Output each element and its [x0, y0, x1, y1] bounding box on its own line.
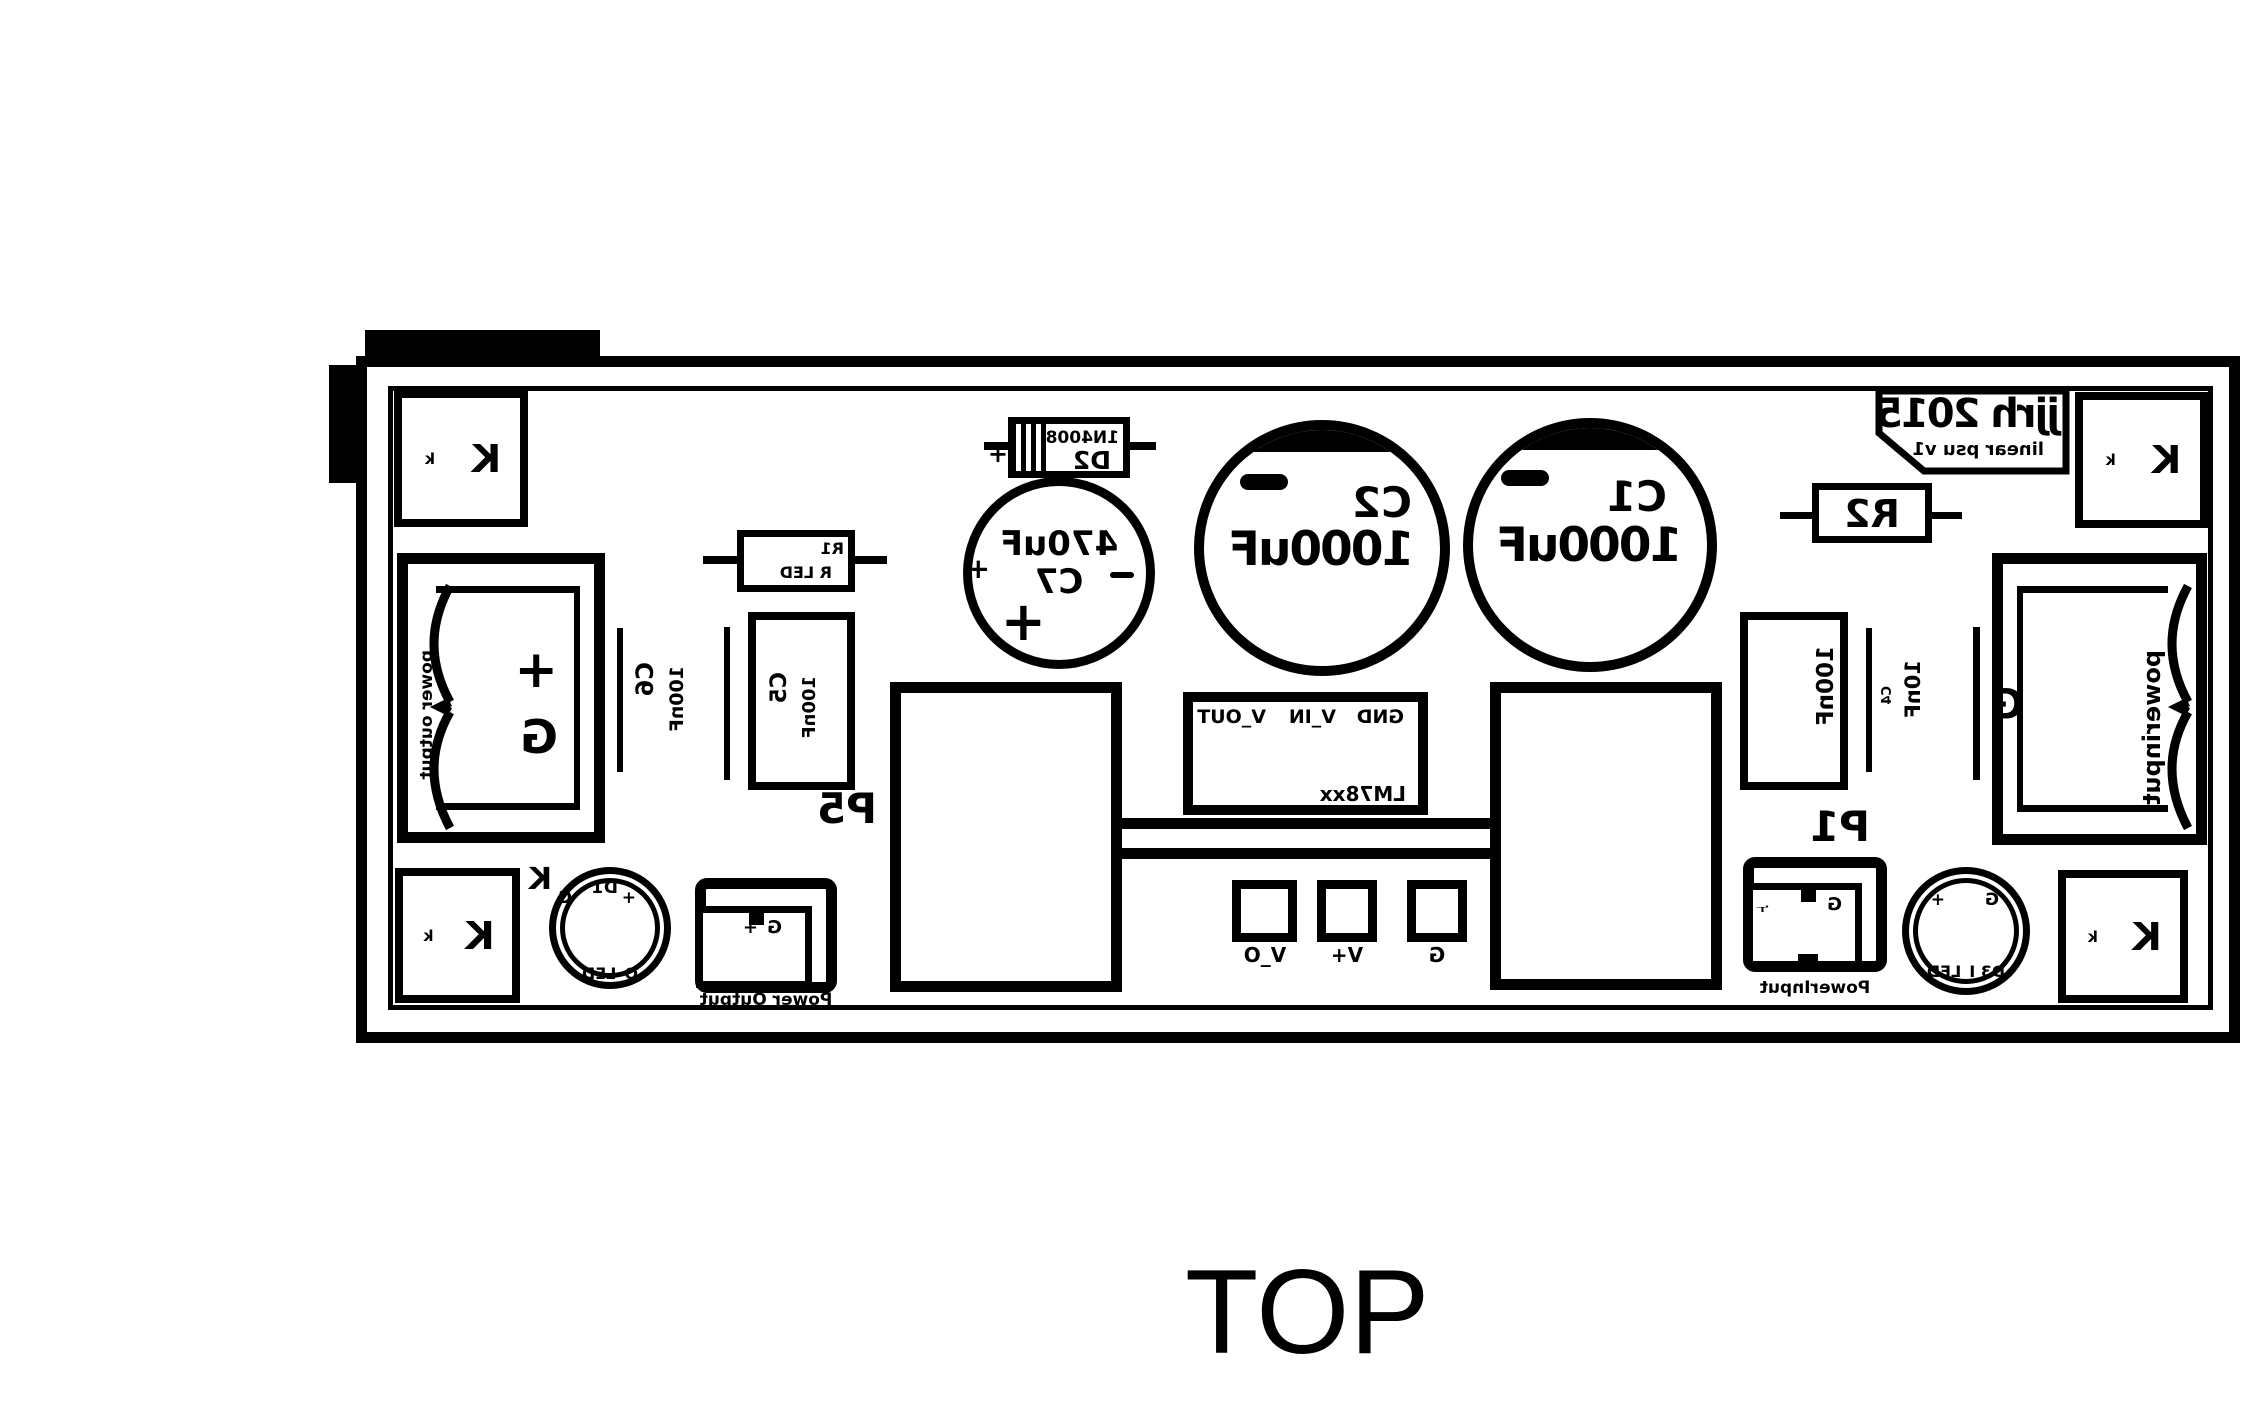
- heatsink-outline-right: [1490, 682, 1722, 990]
- d1-label: O_LED: [556, 964, 664, 983]
- r1-value: R LED: [780, 563, 832, 582]
- c5-ref: C5: [769, 672, 791, 703]
- board-side-tab: [329, 365, 362, 483]
- p1-label: PowerInput: [1733, 978, 1897, 998]
- c5-value: 100nF: [801, 676, 819, 739]
- d3-plus-mark: +: [1931, 890, 1945, 910]
- c6-ref: C6: [633, 662, 657, 696]
- r1-lead: [703, 556, 737, 564]
- logo-subtitle: linear psu v1: [1912, 439, 2044, 460]
- terminal-g-label: G: [520, 710, 558, 764]
- mount-hole-label: K: [529, 862, 552, 897]
- c1-capacitor: C1 1000uF: [1463, 418, 1717, 672]
- logo-tag: jjrh 2015 linear psu v1: [1875, 387, 2070, 475]
- pad-g: [1407, 880, 1467, 942]
- view-side-label: TOP: [1185, 1243, 1430, 1381]
- heatsink-outline-left: [890, 682, 1122, 992]
- p5-notch: [706, 953, 718, 966]
- r1-ref: R1: [821, 539, 844, 558]
- r2-ref: R2: [1819, 492, 1925, 536]
- c2-capacitor: C2 1000uF: [1194, 420, 1450, 676]
- d2-cathode-band: [1015, 424, 1046, 471]
- corner-pad-label-large: K: [2132, 915, 2161, 959]
- d2-diode: 1N4008 D2: [1008, 417, 1130, 478]
- corner-pad-label-small: k: [425, 450, 435, 468]
- corner-pad-label-small: k: [424, 927, 434, 945]
- d1-led: + D1 G O_LED: [549, 867, 671, 989]
- terminal-inner-frame: [436, 586, 580, 810]
- regulator-pin-vout: V_OUT: [1197, 706, 1266, 728]
- p1-key-tab: [1801, 887, 1816, 902]
- p1-pin-g: G: [1827, 894, 1842, 915]
- terminal-vertical-label: powerinput: [2140, 650, 2164, 805]
- c1-minus-mark: [1501, 470, 1549, 486]
- p5-notch: [706, 915, 718, 928]
- c1-polarity-chord: [1473, 428, 1707, 450]
- d1-ref: D1: [592, 878, 618, 898]
- c7-ref: C7: [972, 562, 1146, 602]
- r2-lead: [1780, 512, 1812, 519]
- c3-value: 100nF: [1815, 646, 1838, 726]
- p1-notch: [1864, 932, 1876, 945]
- d2-value: 1N4008: [1046, 428, 1119, 448]
- p5-connector: G +: [695, 878, 837, 993]
- c7-capacitor: 470uF C7 + +: [963, 477, 1155, 669]
- r2-lead: [1930, 512, 1962, 519]
- c1-ref: C1: [1607, 472, 1667, 521]
- p1-connector: G +: [1743, 857, 1887, 972]
- d2-plus-mark: +: [988, 440, 1008, 468]
- c6-value: 100nF: [668, 666, 687, 732]
- pcb-board: K k K k K k K k K jjrh 2015 linear psu v…: [356, 330, 2240, 1046]
- pad-vplus: [1317, 880, 1377, 942]
- regulator-ref: LM78xx: [1320, 782, 1406, 806]
- d3-g-label: G: [1985, 890, 1999, 910]
- c4-plate-line: [1973, 627, 1980, 780]
- p1-notch: [1754, 894, 1766, 907]
- corner-pad-label-large: K: [472, 437, 501, 481]
- heatsink-bar: [1122, 818, 1490, 829]
- c7-plus-mark-large: +: [1001, 590, 1046, 653]
- corner-pad-label-small: k: [2088, 928, 2098, 946]
- p5-notch: [814, 953, 826, 966]
- c4-plate-line: [1866, 628, 1872, 772]
- pad-g-label: G: [1387, 943, 1487, 967]
- power-input-terminal: powerinput G: [1992, 553, 2207, 845]
- p5-label: Power Output: [675, 990, 857, 1010]
- d1-plus-mark: +: [622, 888, 636, 908]
- corner-pad: K k: [395, 868, 520, 1003]
- terminal-vertical-label: power output: [419, 650, 436, 780]
- corner-pad-label-large: K: [2152, 438, 2181, 482]
- regulator-lm78xx: GND V_IN V_OUT LM78xx: [1183, 692, 1428, 815]
- p5-notch: [814, 915, 826, 928]
- p1-ref: P1: [1810, 802, 1870, 851]
- c2-polarity-chord: [1204, 430, 1440, 452]
- r1-resistor: R1 R LED: [737, 530, 855, 592]
- c2-ref: C2: [1352, 478, 1412, 527]
- p1-key-tab: [1798, 954, 1818, 970]
- corner-pad: K k: [394, 390, 528, 527]
- c6-plate-line: [617, 628, 623, 772]
- board-top-tab: [365, 330, 600, 362]
- d2-ref: D2: [1073, 446, 1111, 475]
- c7-plus-mark: +: [967, 552, 990, 585]
- c7-minus-mark: [1110, 572, 1134, 578]
- c5-capacitor: C5 100nF: [748, 612, 855, 790]
- terminal-g-label: G: [1991, 682, 2024, 728]
- c4-ref: C4: [1881, 686, 1894, 705]
- r1-lead: [853, 556, 887, 564]
- c2-minus-mark: [1240, 474, 1288, 490]
- c7-value: 470uF: [972, 524, 1146, 564]
- regulator-pin-vin: V_IN: [1289, 706, 1336, 728]
- p1-notch: [1864, 894, 1876, 907]
- c6-plate-line: [724, 627, 730, 780]
- corner-pad: K k: [2058, 870, 2188, 1003]
- p5-ref: P5: [817, 784, 877, 833]
- pad-vo-label: V_O: [1215, 943, 1315, 967]
- pad-vo: [1232, 880, 1297, 942]
- c2-value: 1000uF: [1204, 522, 1440, 577]
- d1-g-label: G: [558, 888, 572, 908]
- d3-label: D3 I_LED: [1909, 962, 2023, 981]
- c3-capacitor: 100nF: [1740, 612, 1848, 790]
- p5-pin-g: G: [767, 917, 782, 938]
- power-output-terminal: power output + G: [397, 553, 605, 843]
- p1-notch: [1754, 932, 1766, 945]
- r2-resistor: R2: [1812, 483, 1932, 543]
- d3-led: G + D3 I_LED: [1902, 867, 2030, 995]
- c4-value: 10nF: [1903, 660, 1924, 719]
- c1-value: 1000uF: [1473, 518, 1707, 573]
- heatsink-bar: [1122, 848, 1490, 859]
- terminal-plus-label: +: [514, 640, 558, 700]
- corner-pad-label-small: k: [2106, 451, 2116, 469]
- corner-pad: K k: [2075, 392, 2208, 528]
- d2-lead: [1130, 442, 1156, 450]
- corner-pad-label-large: K: [465, 914, 494, 958]
- regulator-pin-gnd: GND: [1357, 706, 1404, 728]
- p5-pin-plus: +: [743, 917, 758, 938]
- logo-title: jjrh 2015: [1877, 391, 2060, 437]
